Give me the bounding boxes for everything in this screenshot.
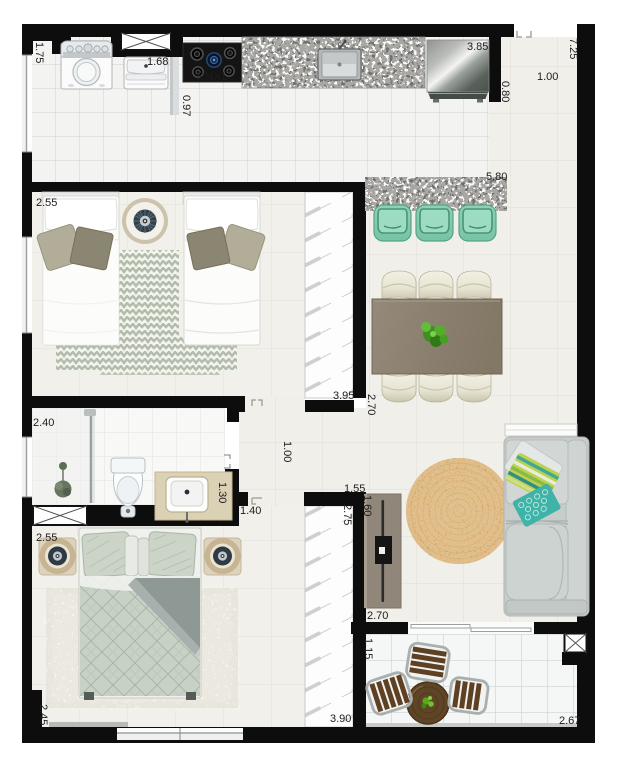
- svg-text:1.40: 1.40: [240, 505, 261, 517]
- svg-text:1.60: 1.60: [361, 495, 373, 516]
- svg-text:1.55: 1.55: [344, 483, 365, 495]
- svg-text:SNXL: SNXL: [197, 71, 230, 83]
- svg-text:1.00: 1.00: [281, 441, 293, 462]
- svg-text:2.45: 2.45: [37, 704, 49, 725]
- svg-text:2.40: 2.40: [33, 417, 54, 429]
- svg-text:3.90: 3.90: [330, 713, 351, 725]
- svg-text:7.25: 7.25: [567, 38, 579, 59]
- svg-text:2.67: 2.67: [559, 715, 580, 727]
- svg-text:2.75: 2.75: [341, 504, 353, 525]
- svg-text:3.85: 3.85: [467, 41, 488, 53]
- svg-text:1.68: 1.68: [147, 56, 168, 68]
- svg-text:3.95: 3.95: [333, 390, 354, 402]
- svg-text:0.80: 0.80: [499, 81, 511, 102]
- svg-text:2.55: 2.55: [36, 532, 57, 544]
- svg-text:5.80: 5.80: [486, 171, 507, 183]
- svg-text:0.97: 0.97: [180, 95, 192, 116]
- svg-text:1.30: 1.30: [216, 482, 228, 503]
- svg-text:1.75: 1.75: [33, 42, 45, 63]
- svg-text:2.70: 2.70: [365, 394, 377, 415]
- svg-text:1.15: 1.15: [362, 638, 374, 659]
- svg-text:2.55: 2.55: [36, 197, 57, 209]
- svg-text:1.00: 1.00: [537, 71, 558, 83]
- svg-text:2.70: 2.70: [367, 610, 388, 622]
